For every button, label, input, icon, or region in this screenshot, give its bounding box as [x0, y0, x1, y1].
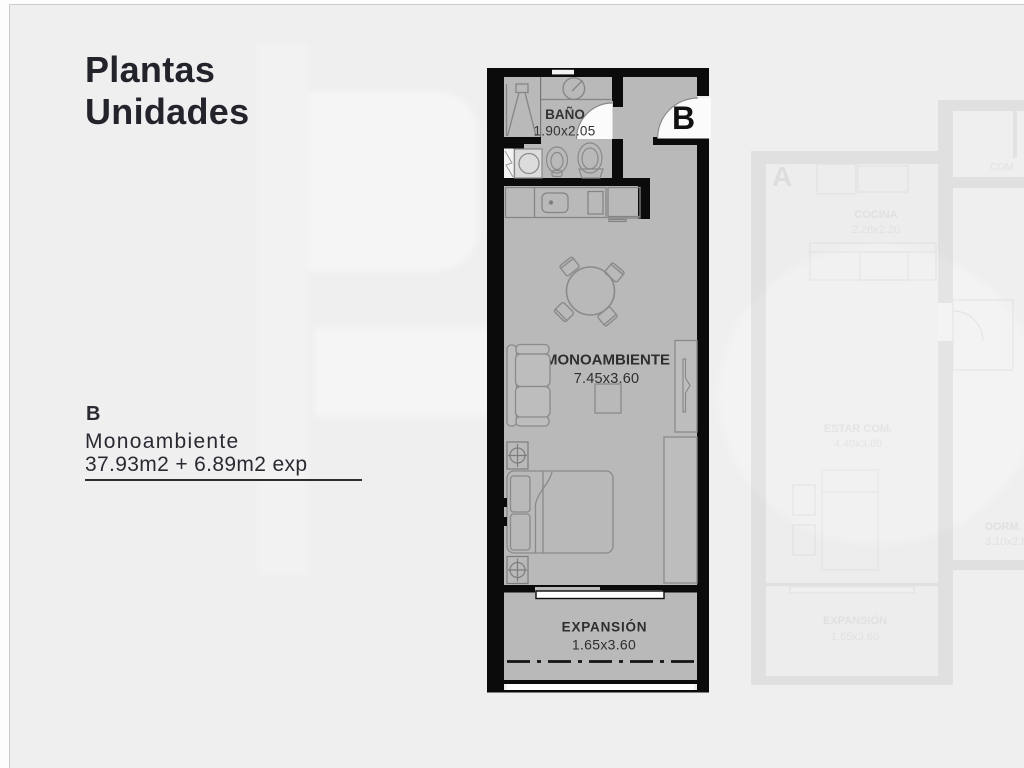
svg-text:4.40x3.60: 4.40x3.60 [834, 438, 882, 450]
svg-text:B: B [86, 403, 100, 425]
svg-text:EXPANSIÓN: EXPANSIÓN [823, 614, 887, 627]
svg-text:BAÑO: BAÑO [545, 107, 585, 122]
svg-text:DORM.: DORM. [985, 521, 1022, 533]
svg-text:EXPANSIÓN: EXPANSIÓN [562, 620, 648, 635]
svg-text:37.93m2 + 6.89m2 exp: 37.93m2 + 6.89m2 exp [85, 453, 307, 476]
svg-text:MONOAMBIENTE: MONOAMBIENTE [545, 352, 670, 369]
svg-text:ESTAR COM.: ESTAR COM. [824, 423, 892, 435]
svg-text:COCINA: COCINA [854, 209, 897, 221]
svg-text:Plantas: Plantas [85, 49, 215, 90]
svg-text:2.28x2.20: 2.28x2.20 [852, 224, 900, 236]
svg-text:1.90x2.05: 1.90x2.05 [534, 124, 596, 139]
svg-text:3.10x2.80: 3.10x2.80 [985, 536, 1024, 548]
svg-text:COM.: COM. [990, 162, 1016, 173]
svg-text:1.65x3.60: 1.65x3.60 [572, 637, 636, 653]
svg-text:A: A [772, 161, 792, 192]
svg-text:1.65x3.60: 1.65x3.60 [831, 631, 879, 643]
svg-text:Monoambiente: Monoambiente [85, 430, 240, 453]
svg-text:B: B [672, 100, 695, 136]
svg-text:Unidades: Unidades [85, 91, 249, 132]
